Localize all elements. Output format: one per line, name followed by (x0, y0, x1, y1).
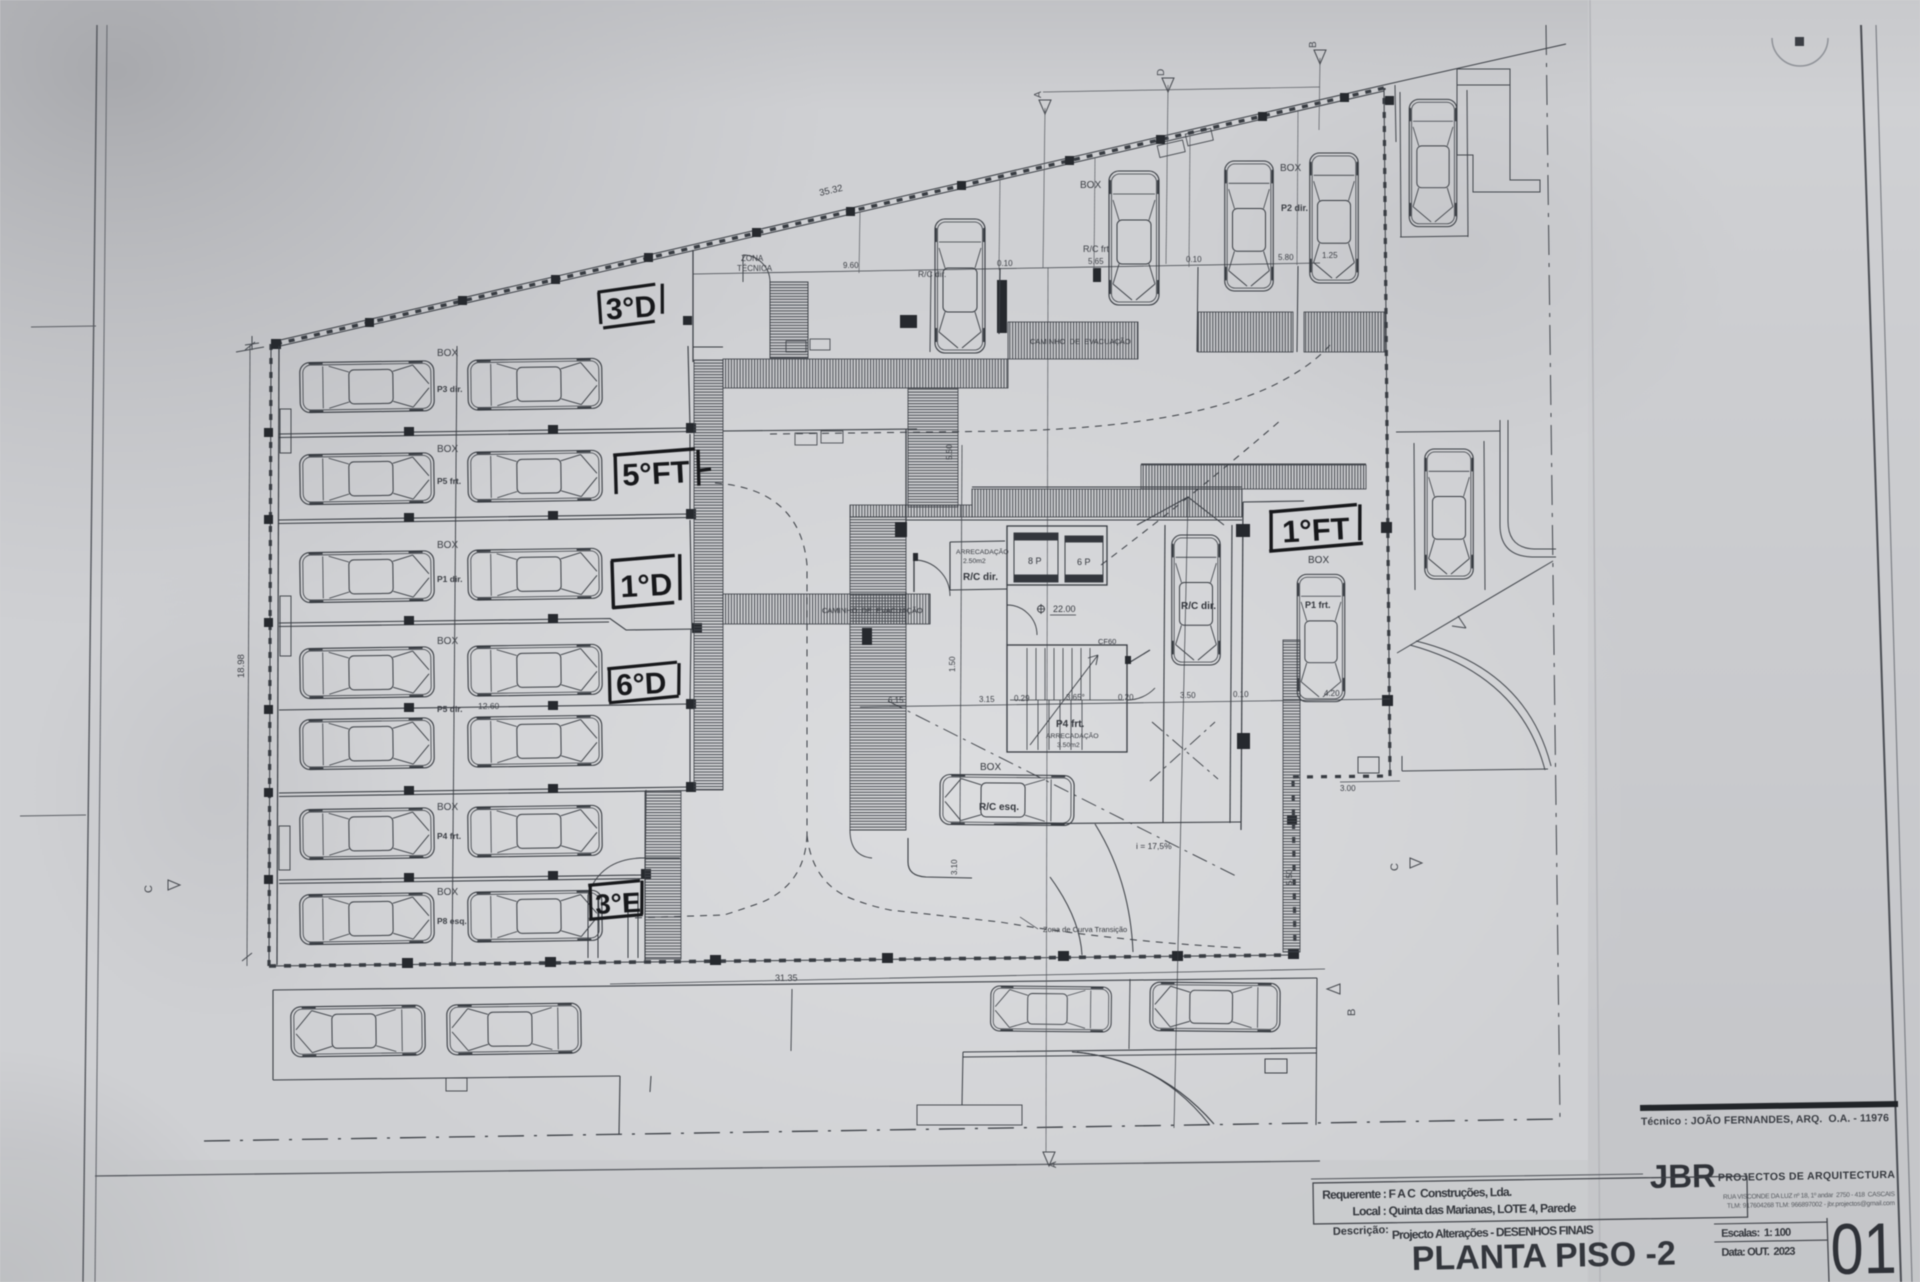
svg-text:22.00: 22.00 (1053, 604, 1076, 614)
svg-text:P5 dir.: P5 dir. (437, 704, 463, 714)
svg-text:A: A (1048, 1161, 1059, 1168)
svg-text:B: B (1346, 1009, 1358, 1016)
svg-text:CAMINHO DE EVACUAÇÃO: CAMINHO DE EVACUAÇÃO (822, 606, 923, 615)
svg-text:BOX: BOX (437, 444, 458, 455)
svg-text:P8 esq.: P8 esq. (437, 916, 467, 926)
svg-text:3.65°: 3.65° (1066, 693, 1085, 702)
svg-text:6.15: 6.15 (888, 696, 904, 705)
svg-text:D: D (1156, 69, 1167, 76)
svg-text:CAMINHO DE EVACUAÇÃO: CAMINHO DE EVACUAÇÃO (1030, 337, 1131, 346)
svg-text:0.10: 0.10 (997, 259, 1013, 268)
svg-text:BOX: BOX (980, 762, 1001, 773)
svg-text:Zona de Curva Transição: Zona de Curva Transição (1043, 925, 1127, 934)
svg-text:1°D: 1°D (619, 567, 673, 605)
svg-text:Data: OUT. 2023: Data: OUT. 2023 (1721, 1246, 1795, 1259)
svg-text:Requerente : F A C Construçõe: Requerente : F A C Construções, Lda. (1322, 1185, 1512, 1202)
svg-text:3.50m2: 3.50m2 (1057, 742, 1080, 749)
svg-text:0.10: 0.10 (1186, 255, 1202, 264)
svg-text:3.10: 3.10 (950, 859, 959, 875)
svg-text:P5 frt.: P5 frt. (437, 476, 461, 486)
svg-text:0.20: 0.20 (1118, 693, 1134, 702)
svg-text:BOX: BOX (1308, 555, 1329, 566)
svg-text:TÉCNICA: TÉCNICA (737, 264, 773, 273)
svg-text:P4 frt.: P4 frt. (437, 831, 461, 841)
svg-text:Descrição:: Descrição: (1333, 1224, 1389, 1238)
svg-text:9.60: 9.60 (843, 261, 859, 270)
svg-text:C: C (143, 885, 155, 893)
svg-text:JBR: JBR (1649, 1157, 1716, 1195)
svg-text:6 P: 6 P (1077, 557, 1091, 567)
svg-text:P3 dir.: P3 dir. (437, 384, 463, 394)
svg-text:C: C (1389, 863, 1401, 871)
svg-text:BOX: BOX (437, 348, 458, 359)
svg-text:R/C dir.: R/C dir. (963, 572, 998, 583)
svg-text:R/C dir.: R/C dir. (1181, 601, 1216, 612)
svg-text:ARRECADAÇÃO: ARRECADAÇÃO (1046, 731, 1099, 740)
svg-text:B: B (1308, 41, 1319, 48)
svg-text:5.50: 5.50 (1285, 869, 1294, 885)
svg-text:P1 dir.: P1 dir. (437, 574, 463, 584)
svg-text:5.65: 5.65 (1088, 257, 1104, 266)
svg-text:PLANTA PISO -2: PLANTA PISO -2 (1411, 1234, 1676, 1278)
svg-text:ARRECADAÇÃO: ARRECADAÇÃO (956, 547, 1009, 556)
svg-text:3.50: 3.50 (1180, 691, 1196, 700)
svg-text:01: 01 (1830, 1209, 1897, 1282)
svg-text:2.50m2: 2.50m2 (963, 558, 986, 565)
svg-text:R/C frt: R/C frt (1083, 244, 1109, 254)
svg-text:CF60: CF60 (1098, 637, 1116, 646)
svg-text:5.80: 5.80 (1278, 253, 1294, 262)
svg-text:R/C dir.: R/C dir. (918, 269, 946, 279)
svg-text:8 P: 8 P (1028, 556, 1042, 566)
svg-text:12.60: 12.60 (478, 701, 500, 711)
svg-text:1.25: 1.25 (1322, 251, 1338, 260)
svg-text:BOX: BOX (1280, 163, 1301, 174)
svg-text:1.50: 1.50 (948, 656, 957, 672)
svg-text:A: A (1033, 91, 1044, 98)
svg-text:31.35: 31.35 (775, 973, 798, 983)
svg-text:i = 17,5%: i = 17,5% (1136, 841, 1172, 851)
svg-text:ZONA: ZONA (741, 254, 764, 263)
svg-text:0.10: 0.10 (1233, 690, 1249, 699)
svg-text:R/C esq.: R/C esq. (979, 802, 1019, 813)
svg-text:P1 frt.: P1 frt. (1305, 600, 1331, 610)
svg-text:3.15: 3.15 (979, 695, 995, 704)
svg-text:5.50: 5.50 (945, 444, 954, 460)
svg-text:BOX: BOX (437, 636, 458, 647)
svg-text:P2 dir.: P2 dir. (1281, 203, 1308, 213)
svg-text:BOX: BOX (437, 540, 458, 551)
svg-text:BOX: BOX (437, 802, 458, 813)
svg-text:0.29: 0.29 (1014, 694, 1030, 703)
svg-text:BOX: BOX (1080, 180, 1101, 191)
svg-text:Escalas: 1: 100: Escalas: 1: 100 (1721, 1227, 1791, 1240)
svg-text:P4 frt.: P4 frt. (1056, 719, 1085, 730)
svg-text:3.00: 3.00 (1340, 784, 1356, 793)
svg-text:18.98: 18.98 (236, 654, 247, 678)
svg-text:BOX: BOX (437, 887, 458, 898)
svg-text:5°FT: 5°FT (621, 454, 690, 492)
